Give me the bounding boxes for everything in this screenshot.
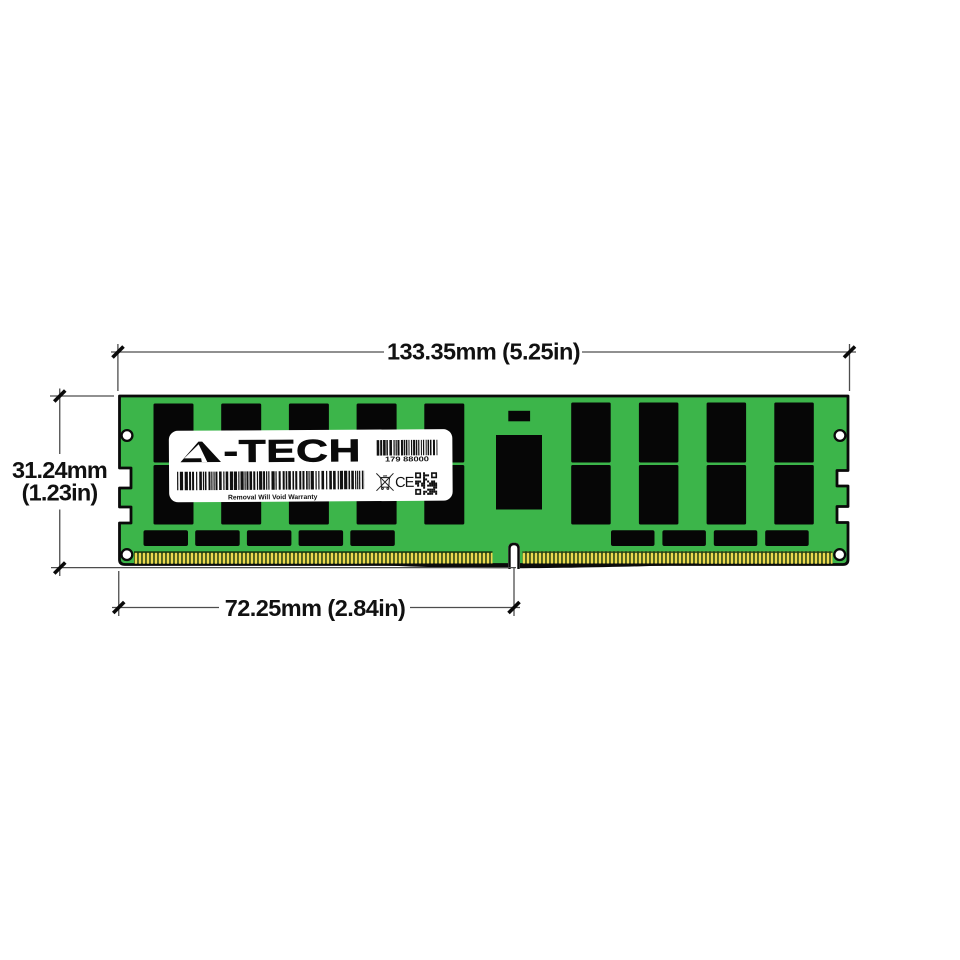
svg-text:(1.23in): (1.23in) (22, 479, 98, 505)
svg-text:179 88000: 179 88000 (385, 456, 429, 463)
svg-text:-TECH: -TECH (223, 433, 361, 469)
svg-text:133.35mm (5.25in): 133.35mm (5.25in) (387, 339, 580, 365)
svg-text:CE: CE (395, 475, 415, 491)
svg-text:Removal Will Void Warranty: Removal Will Void Warranty (228, 494, 318, 502)
svg-text:72.25mm (2.84in): 72.25mm (2.84in) (225, 595, 406, 621)
